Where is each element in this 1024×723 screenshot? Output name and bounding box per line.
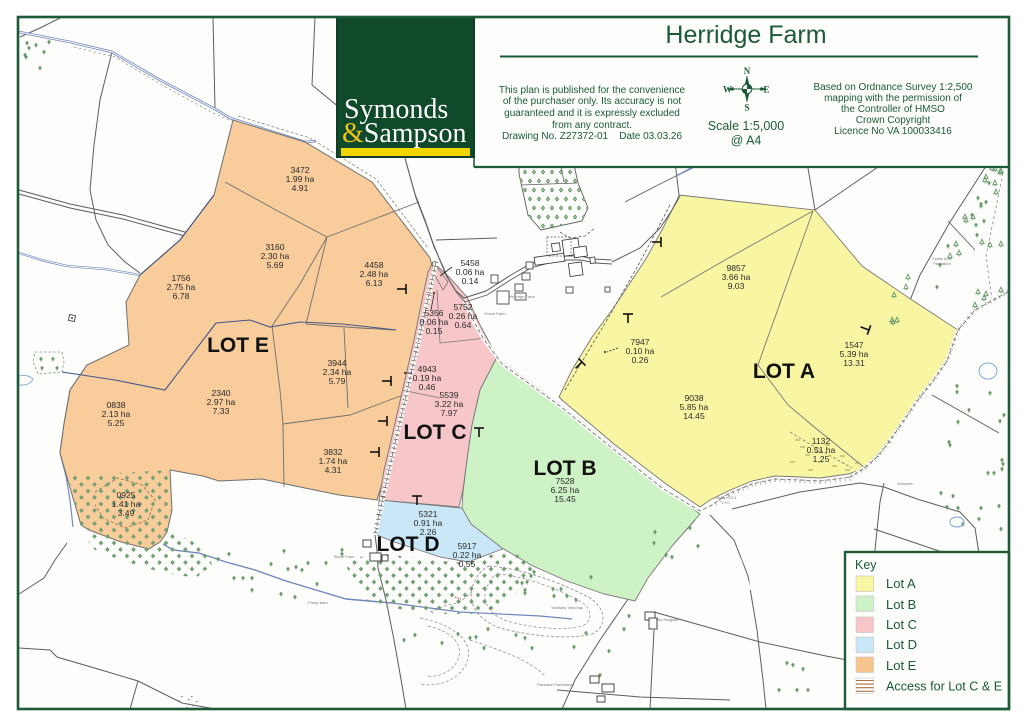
svg-text:LOT E: LOT E: [207, 334, 269, 357]
svg-text:No Hargatts: No Hargatts: [657, 617, 678, 622]
svg-text:@ A4: @ A4: [731, 134, 762, 148]
svg-text:Herridge Farm: Herridge Farm: [509, 294, 535, 299]
svg-text:CYC: CYC: [722, 500, 731, 505]
svg-text:LOT D: LOT D: [377, 533, 440, 556]
svg-text:Access for Lot C & E: Access for Lot C & E: [886, 680, 1002, 694]
svg-text:Paradise Farmhouse: Paradise Farmhouse: [537, 682, 575, 687]
svg-text:Based on Ordnance Survey 1:2,5: Based on Ordnance Survey 1:2,500: [814, 82, 973, 93]
svg-text:Drawing No. Z27372-01 Date: Drawing No. Z27372-01 Date 03.03.26: [502, 131, 683, 142]
svg-text:Stone Farm: Stone Farm: [334, 554, 356, 559]
svg-text:W: W: [723, 85, 732, 95]
svg-text:Licence No VA 100033416: Licence No VA 100033416: [834, 126, 952, 137]
svg-text:Scale 1:5,000: Scale 1:5,000: [708, 119, 784, 133]
svg-text:from any contract.: from any contract.: [552, 120, 632, 131]
svg-text:Pump barn: Pump barn: [308, 600, 328, 605]
svg-text:This plan is published for the: This plan is published for the convenien…: [499, 85, 686, 96]
svg-text:Yardsley Yard bay: Yardsley Yard bay: [551, 605, 583, 610]
svg-text:E: E: [763, 85, 769, 95]
svg-text:Lot D: Lot D: [886, 637, 917, 652]
svg-text:of the purchaser only. Its acc: of the purchaser only. Its accuracy is n…: [503, 96, 681, 107]
svg-text:Keepers: Keepers: [898, 481, 913, 486]
svg-text:guaranteed and it is expressly: guaranteed and it is expressly excluded: [504, 108, 680, 119]
svg-text:N: N: [744, 66, 751, 76]
svg-text:Lot B: Lot B: [886, 597, 916, 612]
svg-text:Home Farm: Home Farm: [484, 311, 506, 316]
svg-text:the Controller of HMSO: the Controller of HMSO: [841, 104, 945, 115]
svg-text:LOT B: LOT B: [534, 457, 597, 480]
svg-text:Herridge Farm: Herridge Farm: [665, 21, 826, 49]
svg-text:LOT A: LOT A: [753, 360, 815, 383]
svg-text:Crown Copyright: Crown Copyright: [856, 115, 931, 126]
svg-text:Lot C: Lot C: [886, 617, 917, 632]
svg-text:mapping with the permission of: mapping with the permission of: [824, 93, 962, 104]
svg-text:Plantation: Plantation: [933, 261, 951, 266]
svg-text:LOT C: LOT C: [404, 421, 467, 444]
svg-text:S: S: [744, 103, 749, 113]
svg-text:Lot E: Lot E: [886, 658, 917, 673]
svg-text:Lot A: Lot A: [886, 576, 916, 591]
svg-text:&Sampson: &Sampson: [342, 118, 466, 149]
svg-text:Key: Key: [855, 558, 877, 572]
